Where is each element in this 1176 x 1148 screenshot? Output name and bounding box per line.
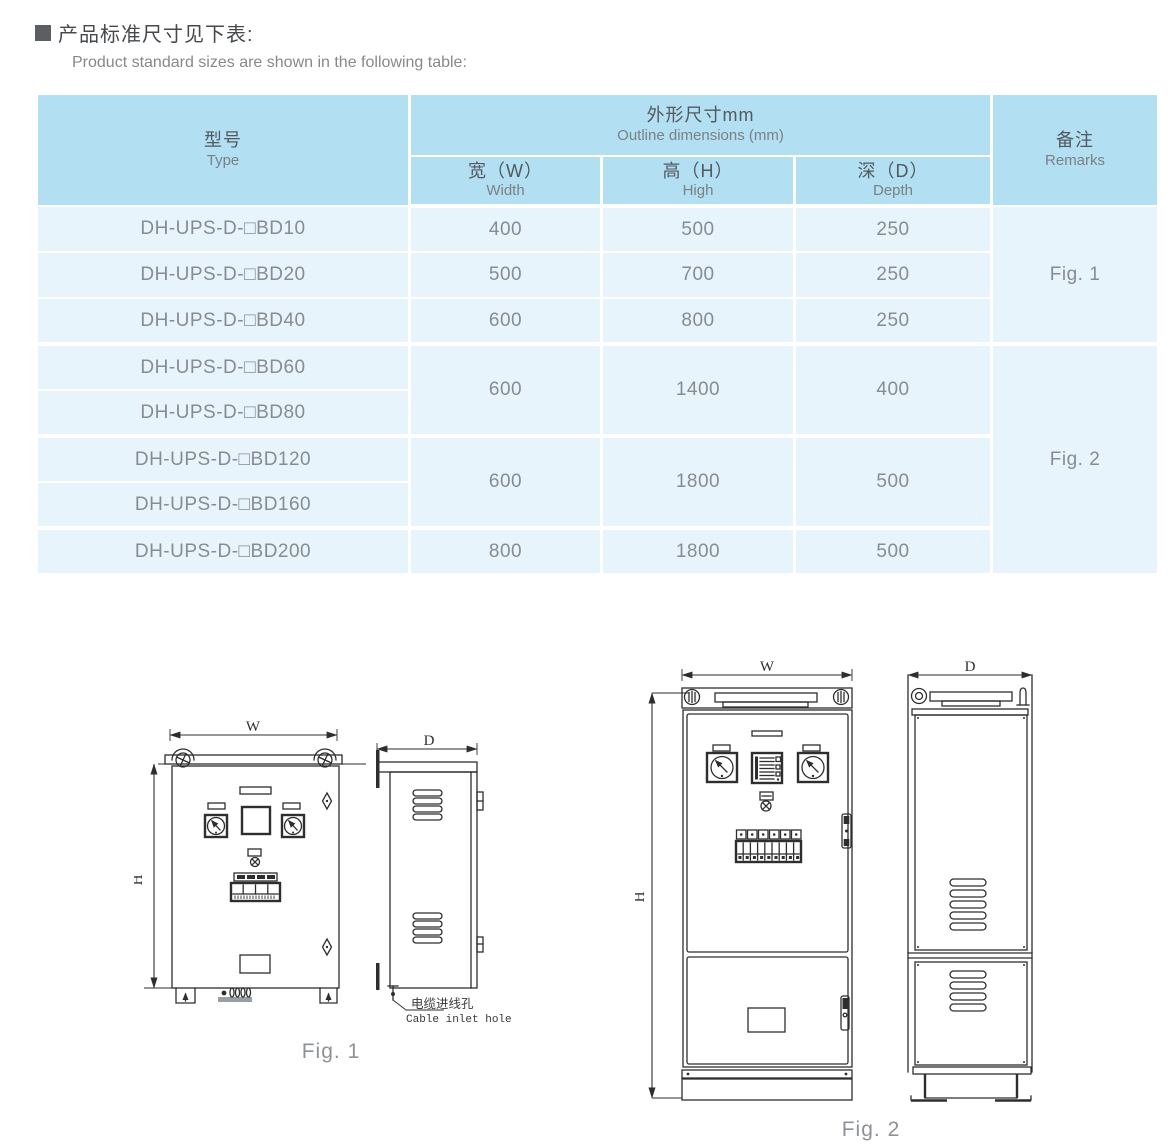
model-cell: DH-UPS-D-□BD200	[37, 528, 410, 574]
depth-cell: 250	[795, 206, 992, 252]
fig1-cable-inlet-label-en: Cable inlet hole	[406, 1014, 512, 1026]
remarks-cell-fig1: Fig. 1	[992, 206, 1159, 344]
table-body: DH-UPS-D-□BD10 400 500 250 Fig. 1 DH-UPS…	[37, 206, 1159, 574]
depth-cell: 250	[795, 298, 992, 344]
col-header-depth: 深（D） Depth	[795, 156, 992, 206]
section-title-en: Product standard sizes are shown in the …	[72, 54, 467, 72]
fig2-door-vent-slot	[752, 731, 782, 736]
fig1-hinge-icons	[477, 792, 483, 952]
table-row: DH-UPS-D-□BD200 800 1800 500	[37, 528, 1159, 574]
col-header-height: 高（H） High	[602, 156, 795, 206]
model-cell: DH-UPS-D-□BD20	[37, 252, 410, 298]
fig2-side-upper-panel	[915, 715, 1027, 950]
width-cell: 400	[410, 206, 602, 252]
model-cell: DH-UPS-D-□BD60	[37, 344, 410, 390]
col-header-width-zh: 宽（W）	[411, 160, 600, 183]
col-header-dimensions-en: Outline dimensions (mm)	[411, 127, 990, 146]
table-row: DH-UPS-D-□BD20 500 700 250	[37, 252, 1159, 298]
col-header-height-zh: 高（H）	[603, 160, 793, 183]
col-header-remarks: 备注 Remarks	[992, 94, 1159, 206]
fig2-terminal-block	[736, 830, 801, 862]
fig1-technical-drawing: W H	[134, 718, 520, 1068]
col-header-remarks-en: Remarks	[993, 152, 1157, 171]
col-header-remarks-zh: 备注	[993, 129, 1157, 152]
fig1-front-view: W H	[134, 719, 366, 1003]
fig2-side-louver-vents-lower	[950, 971, 986, 1011]
height-cell: 800	[602, 298, 795, 344]
model-cell: DH-UPS-D-□BD80	[37, 390, 410, 436]
fig2-controller-module	[752, 753, 782, 783]
square-bullet-icon	[35, 25, 51, 41]
fig2-front-view: W H	[635, 659, 852, 1100]
remarks-cell-fig2: Fig. 2	[992, 344, 1159, 574]
fig1-nameplate	[240, 955, 270, 973]
fig2-right-gauge-icon	[798, 745, 828, 782]
model-cell: DH-UPS-D-□BD160	[37, 482, 410, 528]
height-cell: 700	[602, 252, 795, 298]
col-header-height-en: High	[603, 182, 793, 201]
fig1-latch-icons	[323, 793, 332, 955]
col-header-width: 宽（W） Width	[410, 156, 602, 206]
fig2-lower-door	[687, 957, 848, 1064]
fig2-technical-drawing: W H	[635, 655, 1075, 1148]
col-header-depth-zh: 深（D）	[796, 160, 990, 183]
col-header-type-en: Type	[38, 152, 408, 171]
height-cell: 1800	[602, 528, 795, 574]
product-size-table: 型号 Type 外形尺寸mm Outline dimensions (mm) 备…	[35, 93, 1160, 575]
fig2-side-louver-vents-upper	[950, 879, 986, 930]
fig2-side-base-plinth	[911, 1067, 1031, 1101]
fig1-cable-inlet-callout: 电缆进线孔 Cable inlet hole	[388, 986, 512, 1026]
fig1-louver-vents-top	[413, 790, 442, 820]
model-cell: DH-UPS-D-□BD10	[37, 206, 410, 252]
fig2-dim-d-label: D	[965, 659, 976, 675]
depth-cell: 500	[795, 528, 992, 574]
fig2-dim-w-label: W	[760, 659, 775, 675]
fig2-side-top	[912, 688, 1030, 715]
fig1-terminal-block	[231, 873, 280, 901]
height-cell: 1400	[602, 344, 795, 436]
depth-cell: 250	[795, 252, 992, 298]
fig1-display-window	[242, 807, 270, 834]
table-row: DH-UPS-D-□BD120 600 1800 500	[37, 436, 1159, 482]
fig1-side-top-cap	[377, 762, 477, 772]
header-row-1: 型号 Type 外形尺寸mm Outline dimensions (mm) 备…	[37, 94, 1159, 156]
catalog-page: 产品标准尺寸见下表: Product standard sizes are sh…	[0, 0, 1176, 1148]
col-header-width-en: Width	[411, 182, 600, 201]
col-header-depth-en: Depth	[796, 182, 990, 201]
fig2-dim-h-label: H	[635, 891, 648, 902]
fig1-knob-icon	[248, 849, 261, 867]
fig1-louver-vents-bottom	[413, 913, 442, 943]
height-cell: 500	[602, 206, 795, 252]
col-header-dimensions: 外形尺寸mm Outline dimensions (mm)	[410, 94, 992, 156]
table-row: DH-UPS-D-□BD60 600 1400 400 Fig. 2	[37, 344, 1159, 390]
table-head: 型号 Type 外形尺寸mm Outline dimensions (mm) 备…	[37, 94, 1159, 206]
fig1-dim-w-label: W	[246, 719, 261, 735]
depth-cell: 400	[795, 344, 992, 436]
col-header-dimensions-zh: 外形尺寸mm	[411, 104, 990, 127]
section-title-block: 产品标准尺寸见下表: Product standard sizes are sh…	[35, 18, 467, 72]
section-title-zh: 产品标准尺寸见下表:	[58, 18, 254, 47]
width-cell: 600	[410, 298, 602, 344]
fig1-caption: Fig. 1	[302, 1040, 361, 1063]
fig1-dim-d-label: D	[424, 733, 435, 749]
fig2-left-gauge-icon	[707, 745, 737, 782]
fig2-caption: Fig. 2	[842, 1118, 901, 1141]
width-cell: 600	[410, 344, 602, 436]
fig1-mount-feet	[176, 988, 337, 1003]
fig1-cable-inlet-label-zh: 电缆进线孔	[411, 997, 474, 1011]
col-header-type: 型号 Type	[37, 94, 410, 206]
table-row: DH-UPS-D-□BD10 400 500 250 Fig. 1	[37, 206, 1159, 252]
fig1-left-gauge-icon	[205, 803, 227, 837]
fig2-lower-door-nameplate	[748, 1008, 785, 1032]
fig1-top-vent-slot	[240, 787, 271, 794]
col-header-type-zh: 型号	[38, 129, 408, 152]
section-title-zh-row: 产品标准尺寸见下表:	[35, 18, 467, 47]
model-cell: DH-UPS-D-□BD40	[37, 298, 410, 344]
fig2-base-plinth	[682, 1070, 852, 1100]
fig2-top-canopy	[682, 688, 852, 708]
fig2-knob-icon	[760, 792, 773, 811]
fig1-right-gauge-icon	[282, 803, 304, 837]
height-cell: 1800	[602, 436, 795, 528]
table-row: DH-UPS-D-□BD40 600 800 250	[37, 298, 1159, 344]
model-cell: DH-UPS-D-□BD120	[37, 436, 410, 482]
width-cell: 600	[410, 436, 602, 528]
fig1-wall-bracket-bottom	[376, 963, 380, 990]
fig1-wall-bracket-top	[376, 750, 380, 788]
fig1-cable-gland	[218, 988, 252, 1002]
depth-cell: 500	[795, 436, 992, 528]
width-cell: 800	[410, 528, 602, 574]
width-cell: 500	[410, 252, 602, 298]
fig2-side-view: D	[908, 659, 1032, 1101]
fig1-side-view: D	[376, 733, 512, 1026]
fig2-cabinet-body	[683, 710, 852, 1067]
fig2-upper-door-handle	[842, 814, 851, 848]
fig1-dim-h-label: H	[134, 874, 146, 885]
